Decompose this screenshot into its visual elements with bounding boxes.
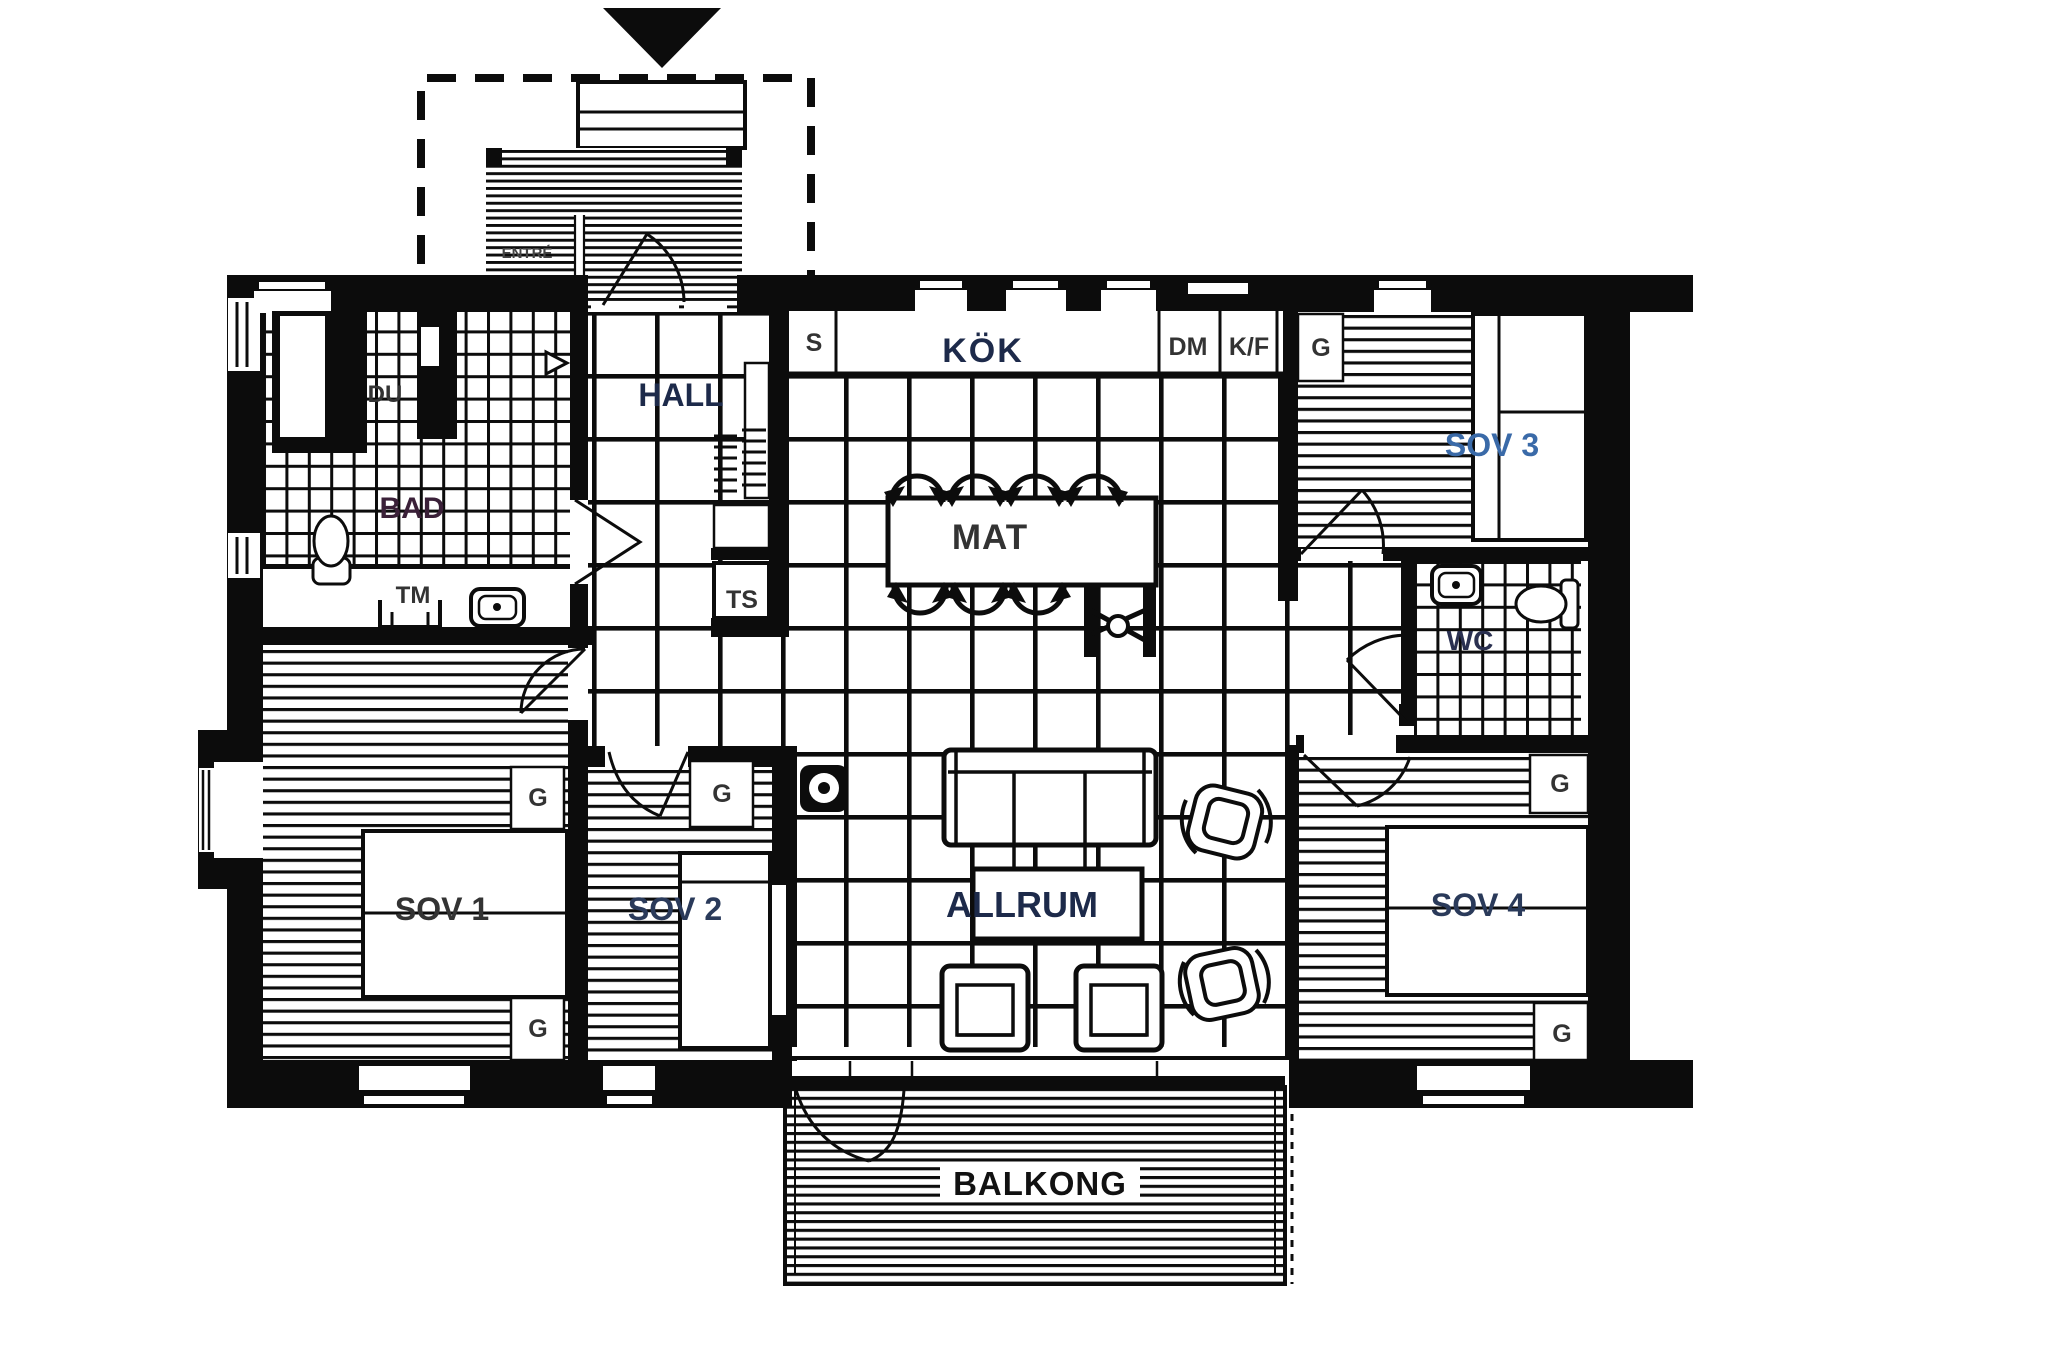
svg-text:TS: TS <box>726 586 758 614</box>
svg-text:G: G <box>528 784 547 812</box>
svg-text:BAD: BAD <box>380 492 445 525</box>
svg-text:SOV 3: SOV 3 <box>1445 427 1539 463</box>
svg-text:G: G <box>712 780 731 808</box>
svg-text:KÖK: KÖK <box>942 332 1024 370</box>
svg-text:DU: DU <box>368 381 403 408</box>
svg-text:ENTRÉ: ENTRÉ <box>502 245 553 262</box>
svg-text:K/F: K/F <box>1229 333 1269 361</box>
svg-text:SOV 1: SOV 1 <box>395 891 489 927</box>
svg-text:G: G <box>528 1015 547 1043</box>
svg-text:BALKONG: BALKONG <box>953 1165 1127 1202</box>
svg-text:DM: DM <box>1169 333 1208 361</box>
svg-text:WC: WC <box>1447 625 1494 656</box>
svg-text:HALL: HALL <box>638 377 723 413</box>
svg-text:TM: TM <box>396 582 431 609</box>
svg-text:MAT: MAT <box>952 518 1028 557</box>
svg-text:G: G <box>1552 1020 1571 1048</box>
svg-text:SOV 4: SOV 4 <box>1431 887 1525 923</box>
svg-text:G: G <box>1311 334 1330 362</box>
svg-text:ALLRUM: ALLRUM <box>946 884 1098 925</box>
svg-text:SOV 2: SOV 2 <box>628 891 722 927</box>
svg-text:S: S <box>806 329 823 357</box>
svg-text:G: G <box>1550 770 1569 798</box>
